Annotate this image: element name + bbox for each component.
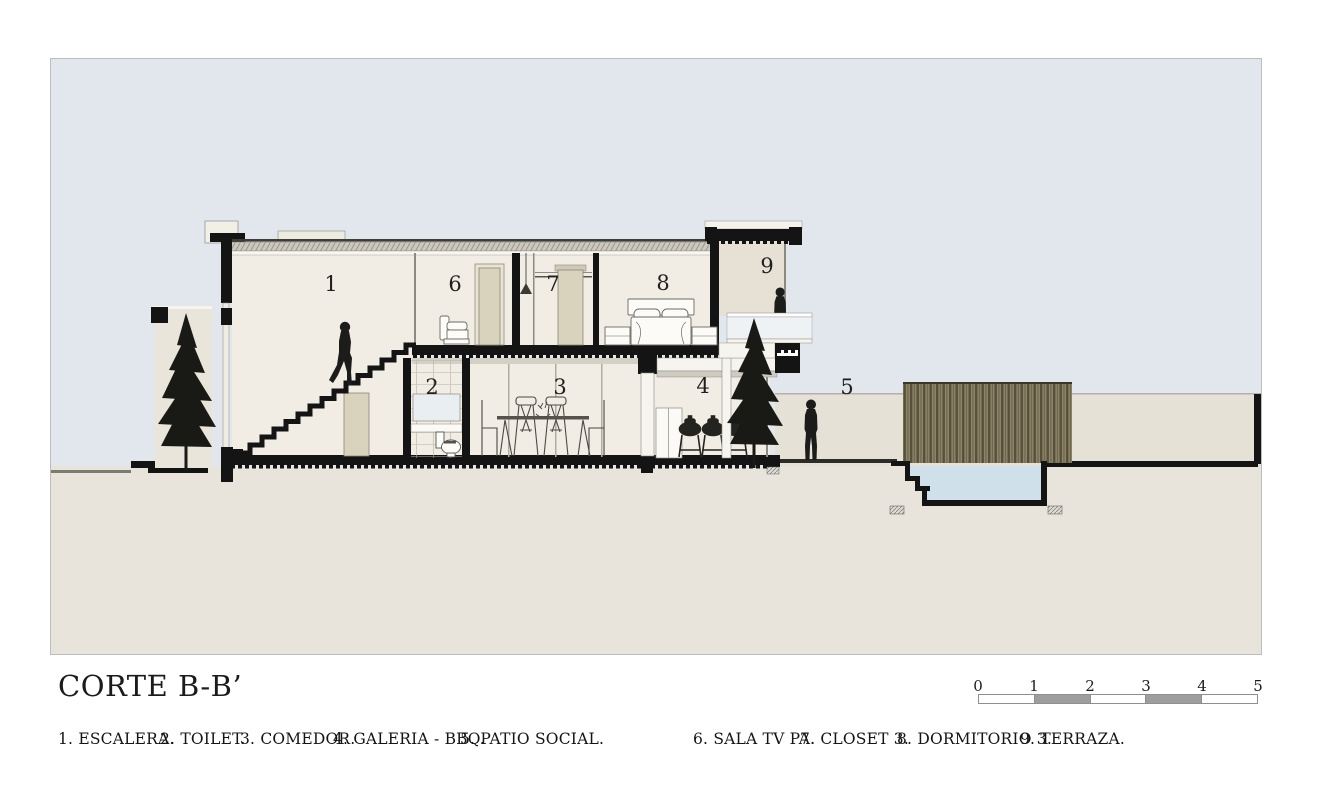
- scale-tick-label: 2: [1085, 677, 1095, 695]
- scale-bar-segment: [1034, 695, 1090, 703]
- footing-wall-3-4: [641, 465, 653, 473]
- terrace-balustrade: [727, 313, 812, 343]
- terrace-roof-deck: [705, 241, 802, 244]
- roof-soffit: [230, 251, 713, 255]
- scale-tick-label: 5: [1253, 677, 1263, 695]
- room-label-4: 4: [696, 374, 709, 398]
- threshold-hatch: [767, 467, 779, 474]
- toilet-counter: [411, 424, 462, 432]
- wall-1-2: [403, 358, 411, 458]
- galeria-column-right: [722, 358, 731, 458]
- ground-floor-slab: [225, 455, 770, 465]
- galeria-cabinet: [656, 408, 682, 458]
- patio-floor-line: [778, 459, 897, 463]
- legend-item: 1. ESCALERA.: [58, 730, 175, 748]
- room-label-2: 2: [425, 375, 438, 399]
- ground-slab-deck: [225, 465, 770, 469]
- scale-tick-label: 0: [973, 677, 983, 695]
- wall-1-6: [414, 253, 416, 345]
- room-label-3: 3: [553, 375, 566, 399]
- architectural-sheet: 1 2 3 4 5 6 7 8 9 CORTE B-B’ 1. ESCALERA…: [0, 0, 1325, 800]
- scale-bar: [978, 694, 1258, 704]
- column-3-4: [641, 373, 654, 456]
- scale-bar-segment: [1145, 695, 1201, 703]
- room-label-9: 9: [760, 254, 773, 278]
- terrace-roof-curb: [705, 221, 802, 229]
- roof-top-line: [230, 239, 713, 242]
- patio-ground-cut-line: [1043, 461, 1258, 467]
- roof-slab: [230, 242, 713, 251]
- room-label-8: 8: [656, 271, 669, 295]
- scale-bar-segment: [1201, 695, 1257, 703]
- room-label-6: 6: [448, 272, 461, 296]
- legend-item: 2. TOILET.: [160, 730, 245, 748]
- room-label-7: 7: [546, 272, 559, 296]
- closet-partition-line: [533, 253, 535, 345]
- scale-tick-label: 4: [1197, 677, 1207, 695]
- street-line: [50, 470, 131, 473]
- terrace-roof-slab: [705, 229, 802, 241]
- wall-7-8: [593, 253, 599, 345]
- legend-item: 9. TERRAZA.: [1020, 730, 1125, 748]
- scale-bar-segment: [1090, 695, 1146, 703]
- ground-terrain: [50, 466, 1262, 655]
- legend-item: 7. CLOSET 3.: [800, 730, 909, 748]
- drawing-title: CORTE B-B’: [58, 669, 242, 703]
- terrace-beam: [775, 343, 800, 373]
- legend-item: 6. SALA TV PA.: [693, 730, 815, 748]
- door-room-6: [475, 264, 504, 345]
- garden-wall-beam: [151, 307, 168, 323]
- legend-item: 5. PATIO SOCIAL.: [460, 730, 604, 748]
- scale-bar-segment: [979, 695, 1034, 703]
- scale-tick-label: 3: [1141, 677, 1151, 695]
- wood-slat-fence: [903, 382, 1072, 463]
- wall-6-7: [512, 253, 520, 345]
- right-boundary-wall: [1254, 394, 1262, 464]
- room-label-1: 1: [324, 272, 337, 296]
- door-under-stairs: [344, 393, 369, 456]
- wall-3-4-beam: [638, 345, 657, 374]
- terrace-roof-right-cap: [789, 227, 802, 245]
- room-label-5: 5: [840, 375, 853, 399]
- wall-2-3: [462, 358, 470, 458]
- scale-tick-label: 1: [1029, 677, 1039, 695]
